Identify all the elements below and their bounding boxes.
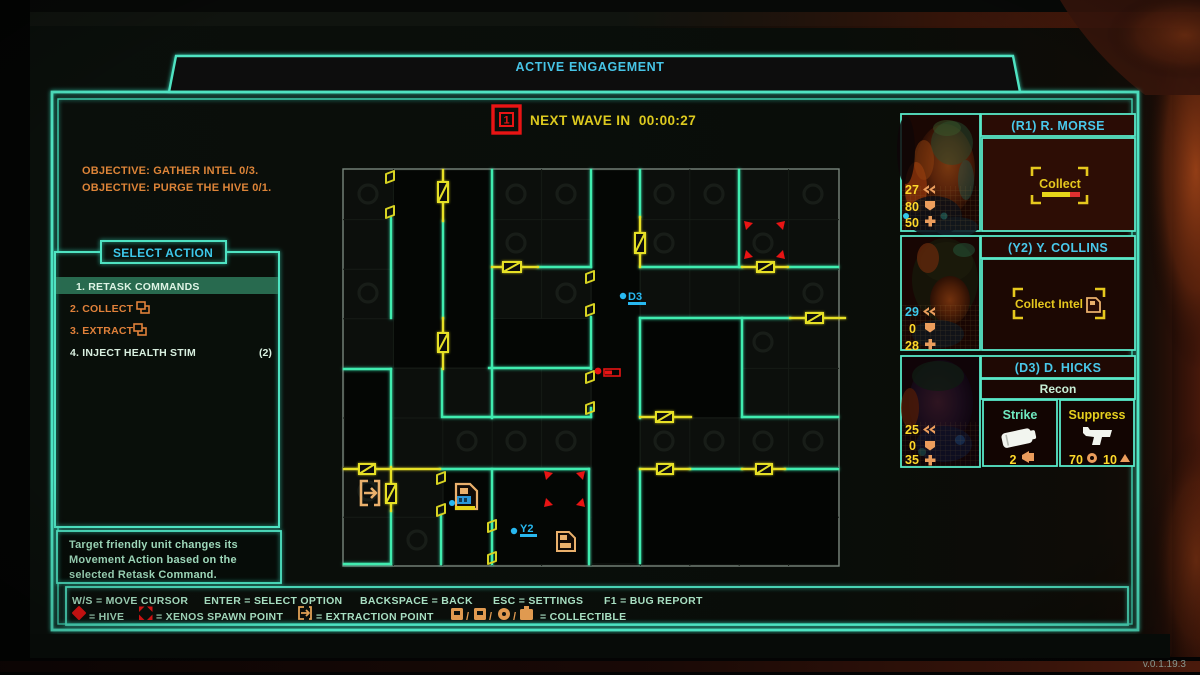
- svg-text:v.0.1.19.3: v.0.1.19.3: [1143, 659, 1187, 670]
